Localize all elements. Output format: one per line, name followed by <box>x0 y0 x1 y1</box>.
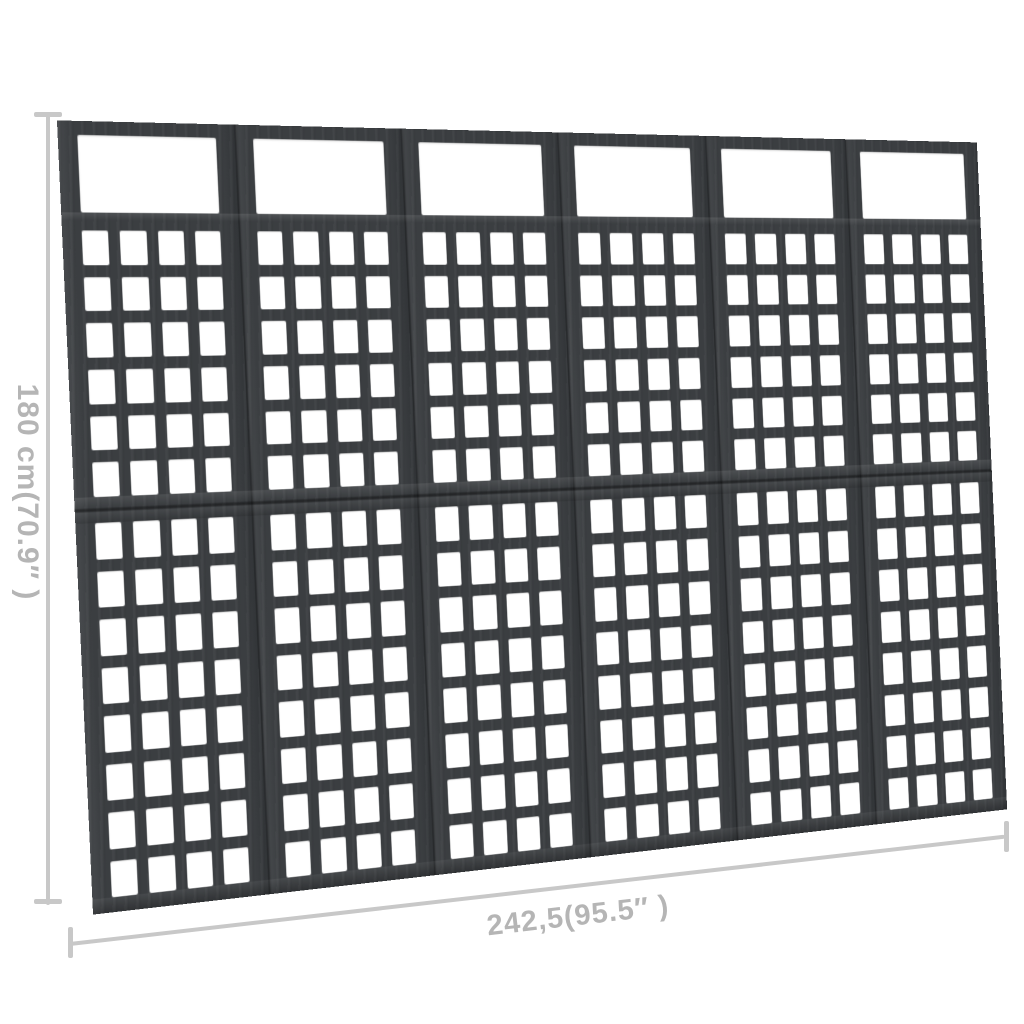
trellis-hole <box>737 492 759 525</box>
trellis-hole <box>827 530 849 563</box>
trellis-hole <box>210 564 237 601</box>
trellis-hole <box>214 658 241 695</box>
trellis-hole <box>354 786 380 823</box>
trellis-hole <box>626 585 649 619</box>
trellis-hole <box>162 322 189 356</box>
trellis-hole <box>441 642 466 678</box>
trellis-hole <box>493 318 517 350</box>
trellis-hole <box>655 539 678 573</box>
trellis-hole <box>168 459 195 494</box>
trellis-hole <box>528 361 552 393</box>
trellis-hole <box>90 415 118 450</box>
trellis-hole <box>285 840 311 878</box>
trellis-hole <box>376 509 402 545</box>
trellis-hole <box>953 352 973 382</box>
trellis-hole <box>888 776 909 809</box>
trellis-hole <box>502 503 526 538</box>
trellis-hole <box>945 770 966 803</box>
trellis-hole <box>676 316 699 347</box>
trellis-hole <box>907 567 928 599</box>
trellis-hole <box>164 368 191 403</box>
trellis-hole <box>792 396 814 427</box>
trellis-hole <box>661 670 684 705</box>
trellis-hole <box>506 592 530 627</box>
trellis-hole <box>598 675 622 710</box>
trellis-hole <box>901 433 922 463</box>
trellis-hole <box>212 611 239 648</box>
trellis-hole <box>948 235 968 264</box>
trellis-hole <box>768 533 790 566</box>
trellis-hole <box>435 506 460 541</box>
trellis-hole <box>943 729 964 762</box>
trellis-hole <box>818 315 840 345</box>
trellis-hole <box>759 315 781 346</box>
trellis-hole <box>886 735 907 768</box>
trellis-hole <box>755 234 777 264</box>
trellis-hole <box>798 532 820 565</box>
trellis-hole <box>283 793 309 831</box>
trellis-hole <box>310 605 336 642</box>
trellis-hole <box>335 364 361 397</box>
trellis-hole <box>477 684 502 720</box>
panel-upper-trellis <box>725 233 845 470</box>
trellis-hole <box>259 276 285 310</box>
trellis-hole <box>896 314 917 344</box>
room-divider <box>57 120 1007 914</box>
trellis-hole <box>179 708 206 746</box>
trellis-hole <box>86 323 114 358</box>
trellis-hole <box>933 524 954 556</box>
trellis-hole <box>274 607 300 644</box>
trellis-hole <box>447 777 472 813</box>
trellis-hole <box>727 275 749 306</box>
trellis-hole <box>541 635 565 670</box>
trellis-hole <box>177 661 204 699</box>
trellis-hole <box>432 450 457 483</box>
trellis-hole <box>780 788 802 822</box>
panel-upper-trellis <box>578 233 705 477</box>
trellis-hole <box>391 829 416 866</box>
panel-lower-trellis <box>590 495 721 842</box>
trellis-hole <box>806 700 828 734</box>
trellis-hole <box>641 233 664 264</box>
trellis-hole <box>730 357 752 388</box>
trellis-hole <box>439 597 464 633</box>
trellis-hole <box>208 517 235 554</box>
trellis-hole <box>965 604 985 636</box>
trellis-hole <box>499 447 523 480</box>
trellis-hole <box>526 318 550 350</box>
trellis-hole <box>651 442 674 474</box>
trellis-hole <box>261 321 287 355</box>
trellis-hole <box>647 358 670 390</box>
product-image: 180 cm(70.9″ ) 242,5(95.5″ ) <box>0 0 1024 1024</box>
trellis-hole <box>881 610 902 643</box>
trellis-hole <box>221 799 248 837</box>
trellis-hole <box>927 392 948 422</box>
trellis-hole <box>458 276 483 308</box>
trellis-hole <box>955 392 975 422</box>
trellis-hole <box>686 538 709 572</box>
trellis-hole <box>99 618 127 656</box>
trellis-hole <box>728 316 750 347</box>
width-dimension-label: 242,5(95.5″ ) <box>427 881 729 951</box>
trellis-hole <box>343 556 369 592</box>
trellis-hole <box>549 812 573 848</box>
panel-lower-trellis <box>95 517 250 898</box>
panel-mid-rail <box>61 212 239 231</box>
trellis-hole <box>909 608 930 641</box>
trellis-hole <box>82 230 110 265</box>
trellis-hole <box>796 489 818 522</box>
trellis-hole <box>760 356 782 387</box>
trellis-hole <box>694 710 717 744</box>
trellis-hole <box>265 411 291 445</box>
trellis-hole <box>645 317 668 348</box>
panel-lower-trellis <box>270 509 416 878</box>
trellis-hole <box>873 434 894 465</box>
trellis-hole <box>140 663 168 701</box>
trellis-hole <box>146 807 174 846</box>
height-dimension-cap-bottom <box>34 899 62 904</box>
trellis-hole <box>810 785 832 819</box>
trellis-hole <box>659 626 682 660</box>
trellis-hole <box>899 393 920 423</box>
trellis-hole <box>272 560 298 597</box>
trellis-hole <box>491 275 515 307</box>
trellis-hole <box>653 496 676 530</box>
panel-top-window <box>418 142 544 216</box>
trellis-hole <box>160 276 187 310</box>
trellis-hole <box>218 752 245 790</box>
trellis-hole <box>961 523 981 555</box>
trellis-hole <box>935 565 956 597</box>
trellis-hole <box>321 836 347 874</box>
trellis-hole <box>684 495 707 529</box>
trellis-hole <box>578 233 602 265</box>
trellis-hole <box>740 578 762 612</box>
trellis-hole <box>674 275 697 306</box>
trellis-hole <box>430 406 455 439</box>
trellis-hole <box>466 448 491 481</box>
trellis-hole <box>734 439 756 470</box>
trellis-hole <box>120 231 148 265</box>
trellis-hole <box>299 365 325 399</box>
trellis-hole <box>594 587 618 622</box>
trellis-hole <box>883 652 904 685</box>
trellis-hole <box>926 353 947 383</box>
trellis-hole <box>295 276 321 309</box>
trellis-hole <box>449 823 474 860</box>
trellis-hole <box>535 502 559 537</box>
trellis-hole <box>329 232 355 265</box>
trellis-hole <box>837 740 859 774</box>
trellis-hole <box>612 275 635 306</box>
trellis-hole <box>201 367 228 401</box>
trellis-hole <box>941 688 962 721</box>
trellis-hole <box>829 572 851 605</box>
trellis-hole <box>101 666 129 704</box>
trellis-hole <box>512 726 536 762</box>
trellis-hole <box>387 737 412 774</box>
trellis-hole <box>869 354 890 384</box>
trellis-hole <box>748 748 770 782</box>
trellis-hole <box>877 527 898 559</box>
trellis-hole <box>345 602 371 638</box>
trellis-hole <box>794 437 816 468</box>
trellis-hole <box>184 803 211 841</box>
trellis-hole <box>460 319 485 352</box>
trellis-hole <box>186 850 213 889</box>
trellis-hole <box>580 275 604 307</box>
height-dimension-label: 180 cm(70.9″ ) <box>8 342 46 642</box>
trellis-hole <box>537 546 561 581</box>
trellis-hole <box>348 648 374 685</box>
trellis-hole <box>270 514 296 550</box>
trellis-hole <box>205 458 232 493</box>
divider-panel <box>234 125 434 895</box>
trellis-hole <box>371 408 396 441</box>
trellis-hole <box>678 358 701 389</box>
trellis-hole <box>913 691 934 724</box>
trellis-hole <box>135 568 163 606</box>
trellis-hole <box>306 512 332 548</box>
trellis-hole <box>894 274 915 304</box>
trellis-hole <box>867 314 888 344</box>
trellis-hole <box>445 732 470 768</box>
trellis-hole <box>543 679 567 714</box>
trellis-hole <box>590 499 614 533</box>
trellis-hole <box>424 276 449 309</box>
trellis-hole <box>776 703 798 737</box>
trellis-hole <box>808 743 830 777</box>
trellis-hole <box>504 548 528 583</box>
panel-mid-rail <box>848 219 981 235</box>
trellis-hole <box>365 276 390 309</box>
trellis-hole <box>788 315 810 346</box>
trellis-hole <box>967 645 987 677</box>
trellis-hole <box>632 716 655 751</box>
trellis-hole <box>481 774 506 810</box>
trellis-hole <box>864 234 885 264</box>
trellis-hole <box>917 773 938 806</box>
trellis-hole <box>173 566 200 603</box>
trellis-hole <box>819 355 841 385</box>
panel-lower-trellis <box>435 502 573 860</box>
trellis-hole <box>464 405 489 438</box>
trellis-hole <box>778 745 800 779</box>
trellis-hole <box>471 550 496 585</box>
trellis-hole <box>643 275 666 306</box>
trellis-hole <box>584 360 608 392</box>
trellis-hole <box>835 698 857 731</box>
trellis-hole <box>767 491 789 524</box>
trellis-hole <box>166 413 193 448</box>
panel-upper-trellis <box>82 230 232 497</box>
trellis-hole <box>547 768 571 804</box>
trellis-hole <box>746 706 768 740</box>
trellis-hole <box>786 274 808 304</box>
trellis-hole <box>157 231 184 265</box>
trellis-hole <box>276 654 302 691</box>
trellis-hole <box>532 446 556 479</box>
trellis-hole <box>508 637 532 672</box>
trellis-hole <box>905 526 926 558</box>
trellis-hole <box>614 317 637 349</box>
trellis-hole <box>634 759 657 794</box>
trellis-hole <box>545 723 569 759</box>
trellis-hole <box>443 687 468 723</box>
panel-mid-rail <box>238 214 405 232</box>
trellis-hole <box>915 732 936 765</box>
trellis-hole <box>510 682 534 718</box>
panel-mid-rail <box>561 216 709 233</box>
trellis-hole <box>263 366 289 400</box>
trellis-hole <box>665 756 688 791</box>
trellis-hole <box>774 661 796 695</box>
trellis-hole <box>680 399 703 431</box>
trellis-hole <box>600 719 624 754</box>
panel-top-window <box>721 149 834 219</box>
trellis-hole <box>911 650 932 683</box>
trellis-hole <box>389 783 414 820</box>
trellis-hole <box>84 277 112 312</box>
trellis-hole <box>785 234 807 264</box>
trellis-hole <box>197 276 224 310</box>
trellis-hole <box>175 613 202 650</box>
width-dimension-cap-right <box>1004 821 1009 852</box>
trellis-hole <box>367 320 392 353</box>
trellis-hole <box>814 234 836 264</box>
trellis-hole <box>871 394 892 424</box>
trellis-hole <box>616 359 639 391</box>
trellis-hole <box>363 232 388 265</box>
trellis-hole <box>97 570 125 608</box>
trellis-hole <box>95 522 123 560</box>
trellis-hole <box>475 639 500 675</box>
trellis-hole <box>133 520 161 557</box>
trellis-hole <box>957 431 977 461</box>
trellis-hole <box>963 564 983 596</box>
trellis-hole <box>108 810 136 849</box>
trellis-hole <box>657 583 680 617</box>
trellis-hole <box>610 233 633 264</box>
trellis-hole <box>497 404 521 437</box>
trellis-hole <box>950 274 970 303</box>
trellis-hole <box>628 628 651 663</box>
trellis-hole <box>764 438 786 469</box>
trellis-hole <box>903 485 924 517</box>
trellis-hole <box>522 232 546 264</box>
trellis-hole <box>698 796 721 831</box>
panel-upper-trellis <box>257 231 399 490</box>
trellis-hole <box>750 791 772 825</box>
trellis-hole <box>969 686 989 719</box>
trellis-hole <box>770 576 792 609</box>
trellis-hole <box>823 436 845 467</box>
trellis-hole <box>884 693 905 726</box>
trellis-hole <box>319 790 345 827</box>
trellis-hole <box>617 401 640 433</box>
trellis-hole <box>216 705 243 743</box>
trellis-hole <box>106 762 134 801</box>
trellis-hole <box>341 510 367 546</box>
trellis-hole <box>199 322 226 356</box>
trellis-hole <box>831 614 853 647</box>
trellis-hole <box>588 444 612 476</box>
trellis-hole <box>619 443 642 475</box>
trellis-hole <box>382 646 407 682</box>
trellis-hole <box>952 313 972 343</box>
trellis-hole <box>195 231 222 265</box>
trellis-hole <box>122 277 150 311</box>
trellis-hole <box>171 518 198 555</box>
trellis-hole <box>181 755 208 793</box>
trellis-hole <box>924 313 945 343</box>
trellis-hole <box>316 744 342 781</box>
trellis-hole <box>790 356 812 387</box>
trellis-hole <box>929 432 950 462</box>
trellis-hole <box>257 231 283 264</box>
trellis-hole <box>592 543 616 577</box>
trellis-hole <box>692 667 715 701</box>
trellis-hole <box>602 762 626 797</box>
trellis-hole <box>744 663 766 697</box>
panel-mid-rail <box>709 217 849 234</box>
trellis-hole <box>293 231 319 264</box>
trellis-hole <box>624 541 647 575</box>
trellis-hole <box>281 747 307 784</box>
trellis-hole <box>826 488 848 521</box>
trellis-hole <box>104 714 132 752</box>
trellis-hole <box>667 800 690 835</box>
trellis-hole <box>301 410 327 444</box>
trellis-hole <box>937 606 958 638</box>
trellis-hole <box>672 233 695 264</box>
trellis-hole <box>303 454 329 488</box>
trellis-hole <box>339 453 365 487</box>
trellis-hole <box>308 558 334 594</box>
trellis-hole <box>821 395 843 426</box>
trellis-hole <box>124 323 152 358</box>
trellis-hole <box>596 631 620 666</box>
trellis-hole <box>772 618 794 652</box>
trellis-hole <box>649 400 672 432</box>
trellis-hole <box>530 403 554 435</box>
panel-upper-trellis <box>422 232 556 483</box>
trellis-hole <box>428 363 453 396</box>
trellis-hole <box>267 455 293 489</box>
trellis-hole <box>314 697 340 734</box>
trellis-hole <box>489 232 513 264</box>
trellis-hole <box>384 692 409 728</box>
trellis-hole <box>604 806 628 842</box>
trellis-hole <box>352 740 378 777</box>
trellis-hole <box>663 713 686 748</box>
trellis-hole <box>473 594 498 629</box>
trellis-hole <box>223 846 250 884</box>
trellis-hole <box>742 620 764 654</box>
trellis-hole <box>738 535 760 568</box>
trellis-hole <box>582 317 606 349</box>
trellis-hole <box>422 232 447 264</box>
trellis-hole <box>939 647 960 680</box>
trellis-hole <box>922 274 943 304</box>
trellis-hole <box>757 275 779 306</box>
trellis-hole <box>378 555 404 591</box>
trellis-hole <box>137 616 165 654</box>
trellis-hole <box>333 320 359 353</box>
